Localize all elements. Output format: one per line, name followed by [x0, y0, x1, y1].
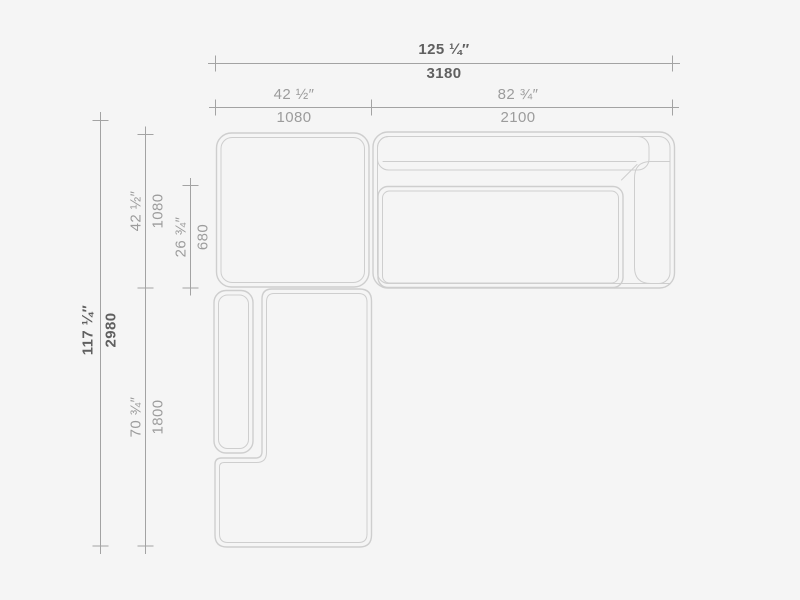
armrest-inner-line: [635, 162, 671, 284]
chaise-body-outer-outline: [215, 289, 372, 547]
chaise-back-cushion-outer: [214, 291, 253, 454]
dim-chaise-length-mm: 1800: [149, 400, 166, 435]
dim-top-depth-mm: 1080: [149, 194, 166, 229]
corner-module: [217, 133, 370, 287]
dim-seat-depth-inches: 26 ¾″: [173, 217, 190, 258]
dim-seat-depth-mm: 680: [195, 224, 212, 250]
corner-module-outer-outline: [217, 133, 370, 287]
dim-top-depth-inches: 42 ½″: [127, 191, 144, 232]
sofa-plan-svg: [0, 0, 800, 600]
dim-sofa-width-inches: 82 ¾″: [498, 86, 539, 103]
sofa-dimension-drawing: 125 ¼″ 3180 42 ½″ 1080 82 ¾″ 2100 117 ¼″…: [0, 0, 800, 600]
dim-overall-depth-mm: 2980: [102, 313, 119, 348]
sofa-body-outer-outline: [373, 132, 675, 288]
corner-module-inner-outline: [221, 138, 365, 283]
seat-cushion-outer: [378, 187, 623, 288]
chaise-module: [214, 289, 372, 547]
backrest-cushion: [378, 137, 650, 171]
dim-corner-width-inches: 42 ½″: [274, 86, 315, 103]
sofa-module: [373, 132, 675, 288]
seat-cushion-inner: [383, 191, 619, 283]
dim-sofa-width-mm: 2100: [501, 109, 536, 126]
dim-chaise-length-inches: 70 ¾″: [127, 397, 144, 438]
dimension-lines: [93, 56, 681, 555]
sofa-outlines: [214, 132, 675, 547]
dim-overall-width-mm: 3180: [427, 65, 462, 82]
dim-overall-depth-inches: 117 ¼″: [80, 305, 97, 355]
sofa-body-inner-outline: [378, 137, 671, 284]
chaise-body-inner-outline: [220, 294, 368, 543]
dim-corner-width-mm: 1080: [277, 109, 312, 126]
dim-overall-width-inches: 125 ¼″: [418, 41, 469, 58]
chaise-back-cushion-inner: [219, 295, 249, 449]
